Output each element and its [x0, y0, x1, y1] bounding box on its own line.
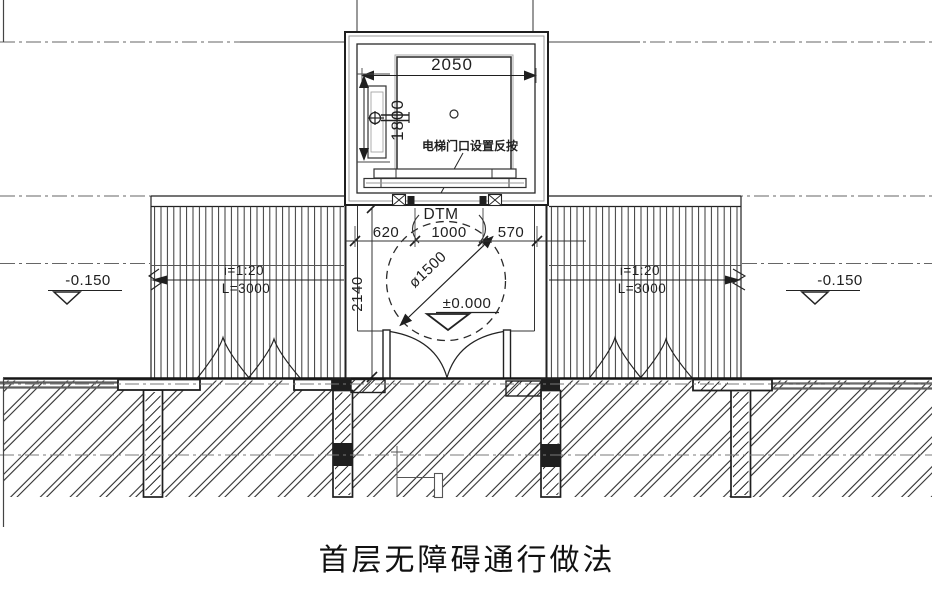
threshold-hatch-left — [351, 380, 385, 393]
foundation-wall-3 — [541, 391, 561, 498]
foundation-wall-1 — [144, 390, 163, 497]
paving-box-center — [294, 380, 332, 391]
ramp-left-length-label: L=3000 — [222, 281, 270, 296]
drawing-canvas: i=1:20 L=3000 i=1:20 L=3000 — [0, 0, 932, 594]
door-swing-right — [447, 332, 504, 378]
dim-570-label: 570 — [498, 224, 525, 241]
level-left-label: -0.150 — [65, 272, 111, 289]
level-right-symbol — [802, 292, 828, 304]
ramp-right: i=1:20 L=3000 — [549, 196, 745, 379]
floor-plan-drawing: i=1:20 L=3000 i=1:20 L=3000 — [0, 0, 932, 594]
paving-box-left — [118, 380, 200, 391]
door-jamb-left — [383, 330, 390, 379]
entrance-doors — [383, 330, 511, 379]
elevator-shaft: 2050 1800 电梯门口设置反按 — [345, 32, 548, 206]
level-mark-left: -0.150 — [48, 272, 122, 304]
dim-1800-label: 1800 — [388, 99, 407, 141]
level-mark-right: -0.150 — [786, 272, 863, 304]
foundation-wall-2 — [333, 391, 353, 498]
drawing-title: 首层无障碍通行做法 — [319, 544, 616, 577]
door-sill — [364, 169, 526, 188]
ground-section — [0, 378, 932, 528]
threshold-hatch-right — [506, 381, 541, 396]
ramp-left-slope-label: i=1:20 — [224, 263, 264, 278]
door-swing-left — [390, 332, 447, 378]
earth-hatch — [3, 381, 932, 498]
level-left-symbol — [54, 292, 80, 304]
level-zero-symbol — [427, 314, 469, 330]
turning-circle-diameter-label: ø1500 — [406, 248, 450, 291]
level-zero-label: ±0.000 — [443, 295, 492, 312]
level-right-label: -0.150 — [817, 272, 863, 289]
foundation-wall-4 — [731, 390, 751, 497]
ramp-right-slope-label: i=1:20 — [620, 263, 660, 278]
dim-1000-label: 1000 — [431, 224, 466, 241]
ramp-right-length-label: L=3000 — [618, 281, 666, 296]
dim-620-label: 620 — [373, 224, 400, 241]
ramp-left: i=1:20 L=3000 — [149, 196, 344, 379]
dim-2140-label: 2140 — [349, 276, 366, 311]
door-jamb-right — [504, 330, 511, 379]
dtm-label: DTM — [423, 206, 458, 223]
dim-2050-label: 2050 — [431, 55, 473, 74]
elevator-door-note: 电梯门口设置反按 — [422, 138, 518, 153]
